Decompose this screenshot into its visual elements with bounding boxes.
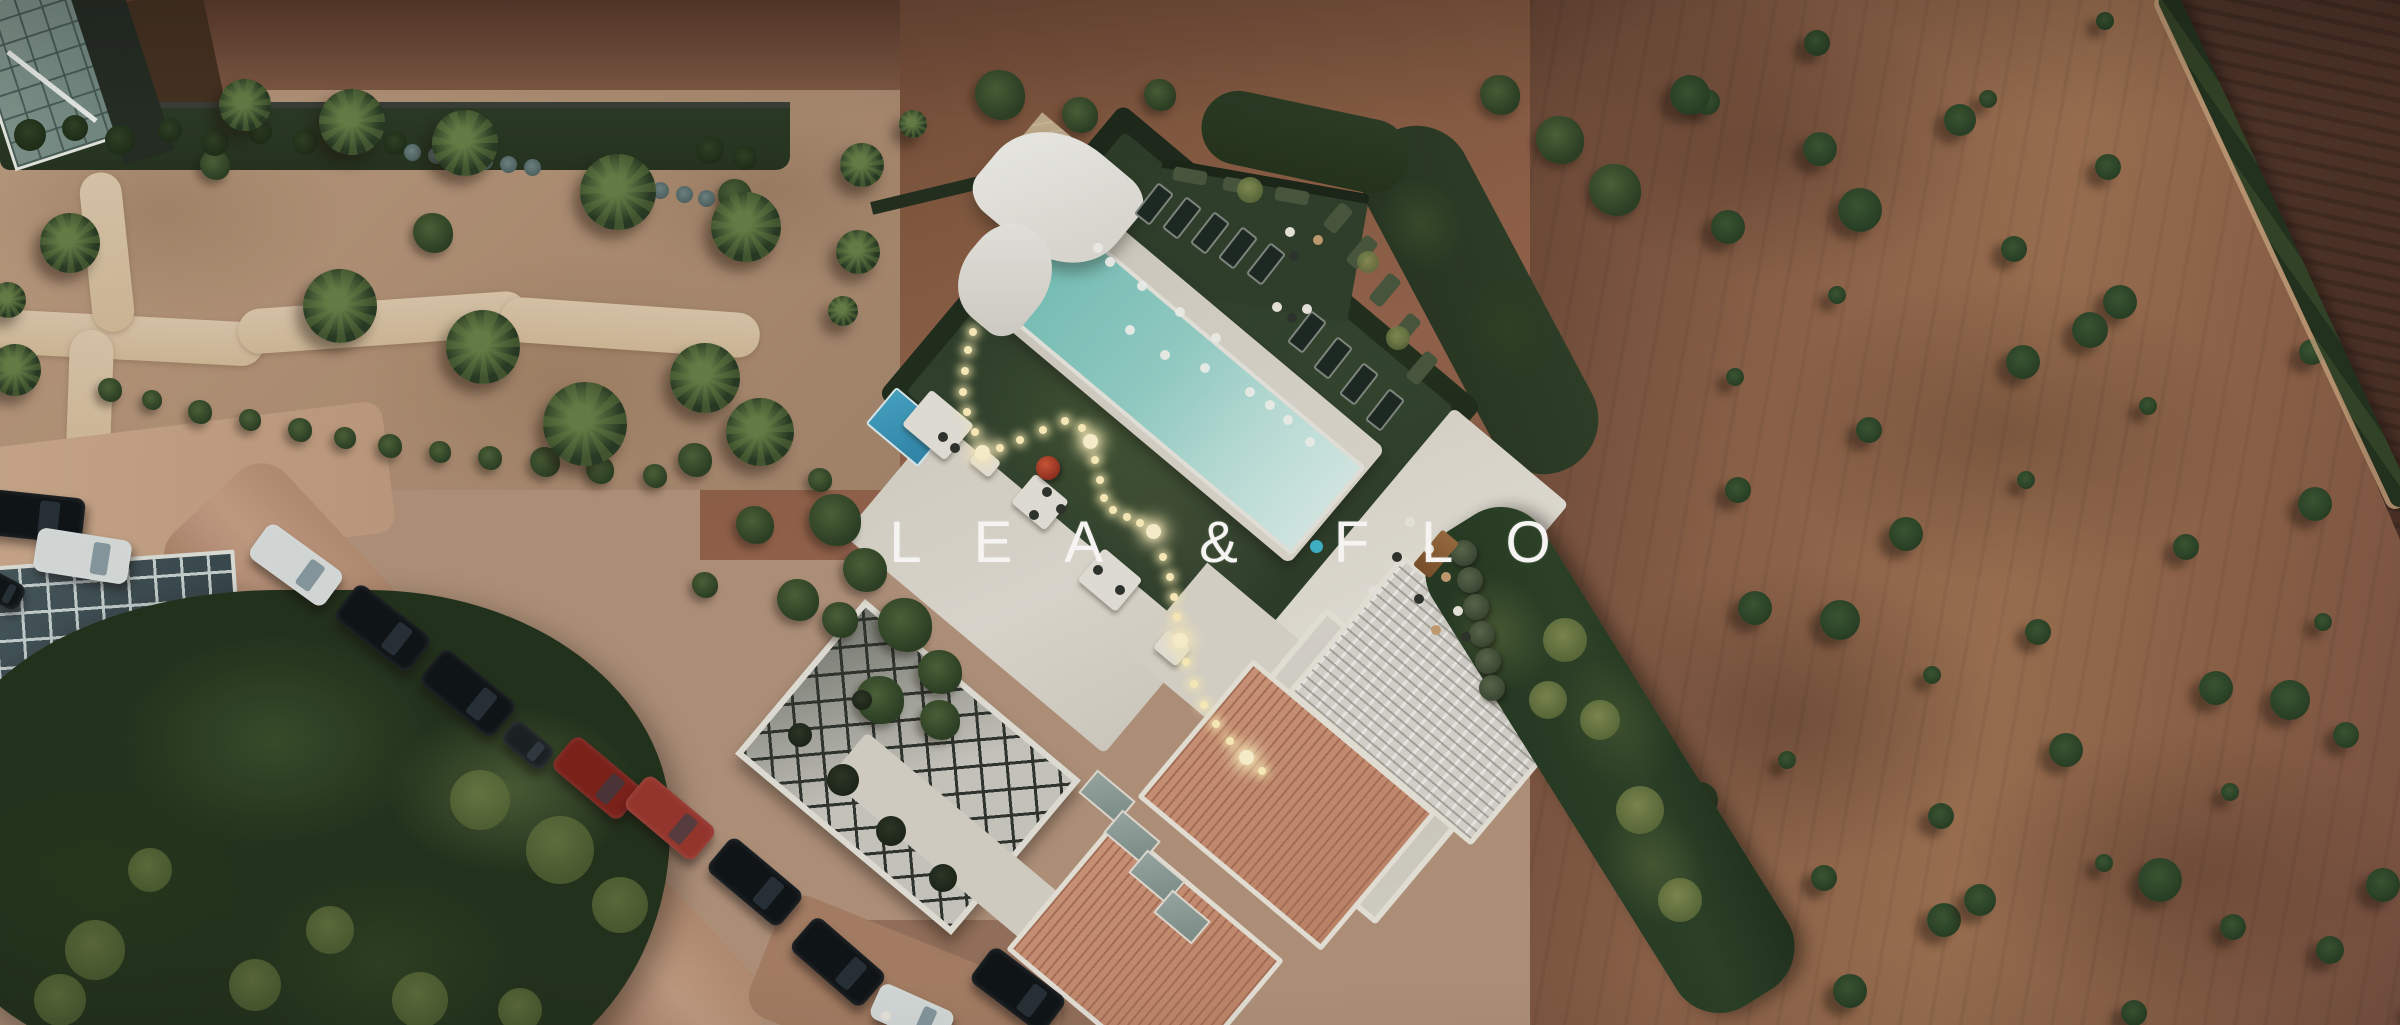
garden-bush: [142, 390, 162, 410]
hedge-bush: [158, 118, 182, 142]
title-groom: FLO: [1334, 514, 1603, 572]
field-shrub: [1738, 591, 1772, 625]
olive-accent: [1237, 177, 1263, 203]
field-shrub: [1820, 600, 1860, 640]
garden-bush: [334, 427, 356, 449]
pool-float: [1283, 415, 1293, 425]
car-windshield: [914, 1006, 938, 1025]
guest-dot: [938, 432, 948, 442]
boulder-bush: [1475, 648, 1501, 674]
guest-dot: [1285, 227, 1295, 237]
compound-bush: [918, 650, 962, 694]
field-shrub: [2121, 1000, 2147, 1025]
guest-dot: [1289, 251, 1299, 261]
palm-tree: [580, 154, 656, 230]
field-shrub: [1928, 803, 1954, 829]
car-windshield: [594, 772, 626, 805]
plant-pot: [676, 186, 693, 203]
hedge-bush: [62, 115, 88, 141]
string-light: [996, 444, 1004, 452]
hedge-bush: [201, 128, 229, 156]
pool-float: [1175, 307, 1185, 317]
pergola-tree-gap: [876, 816, 906, 846]
field-shrub: [1828, 286, 1846, 304]
pool-float: [1125, 325, 1135, 335]
garden-bush: [808, 468, 832, 492]
paper-lantern: [1173, 633, 1188, 648]
field-shrub: [1778, 751, 1796, 769]
tree-highlight: [34, 974, 86, 1025]
compound-bush: [809, 494, 861, 546]
car-windshield: [295, 558, 326, 592]
tree-highlight: [229, 959, 281, 1011]
field-shrub: [2025, 619, 2051, 645]
car-windshield: [1, 583, 17, 605]
garden-bush: [239, 409, 261, 431]
pool-float: [1265, 400, 1275, 410]
garden-bush: [478, 446, 502, 470]
field-shrub: [2221, 783, 2239, 801]
olive-accent: [1658, 878, 1702, 922]
tree-highlight: [392, 972, 448, 1025]
red-parasol: [1036, 456, 1060, 480]
string-light: [1226, 737, 1234, 745]
pool-float: [1160, 350, 1170, 360]
field-shrub: [1856, 417, 1882, 443]
olive-accent: [1616, 786, 1664, 834]
title-overlay: LEA & FLO: [889, 514, 1550, 572]
garden-bush: [678, 443, 712, 477]
guest-dot: [881, 1011, 891, 1021]
field-shrub: [2316, 936, 2344, 964]
boulder-bush: [1463, 594, 1489, 620]
olive-accent: [1580, 700, 1620, 740]
garden-bush: [188, 400, 212, 424]
string-light: [961, 367, 969, 375]
aerial-wedding-video-frame: LEA & FLO: [0, 0, 2400, 1025]
tree-highlight: [450, 770, 510, 830]
garden-bush: [736, 506, 774, 544]
field-shrub: [1838, 188, 1882, 232]
field-shrub: [2138, 858, 2182, 902]
paper-lantern: [1083, 434, 1098, 449]
pergola-tree-gap: [827, 764, 859, 796]
hedge-bush: [14, 119, 46, 151]
garden-bush: [1536, 116, 1584, 164]
hedge-bush: [105, 125, 135, 155]
string-light: [1212, 720, 1220, 728]
hedge-bush: [733, 146, 757, 170]
plant-pot: [698, 190, 715, 207]
guest-dot: [1453, 606, 1463, 616]
palm-tree: [219, 79, 271, 131]
compound-bush: [822, 602, 858, 638]
field-shrub: [2270, 680, 2310, 720]
tree-highlight: [592, 877, 648, 933]
garden-bush: [975, 70, 1025, 120]
palm-tree: [432, 110, 498, 176]
field-shrub: [2298, 487, 2332, 521]
string-light: [1039, 426, 1047, 434]
paper-lantern: [1239, 750, 1254, 765]
car-windshield: [752, 876, 785, 911]
field-shrub: [2220, 914, 2246, 940]
hedge-bush: [696, 136, 724, 164]
car-windshield: [835, 956, 869, 991]
guest-dot: [1115, 585, 1125, 595]
palm-tree: [726, 398, 794, 466]
olive-accent: [1543, 618, 1587, 662]
garden-bush: [413, 213, 453, 253]
field-shrub: [2072, 312, 2108, 348]
palm-tree: [711, 192, 781, 262]
guest-dot: [1313, 235, 1323, 245]
field-shrub: [2173, 534, 2199, 560]
guest-dot: [1272, 302, 1282, 312]
field-shrub: [1889, 517, 1923, 551]
compound-bush: [878, 598, 932, 652]
car-windshield: [381, 621, 414, 656]
field-shrub: [1670, 75, 1710, 115]
palm-tree: [828, 296, 858, 326]
field-shrub: [1833, 974, 1867, 1008]
string-light: [1166, 573, 1174, 581]
palm-tree: [836, 230, 880, 274]
string-light: [959, 388, 967, 396]
guest-dot: [1461, 632, 1471, 642]
string-light: [963, 408, 971, 416]
garden-bush: [429, 441, 451, 463]
field-shrub: [2095, 854, 2113, 872]
pool-float: [1093, 243, 1103, 253]
field-shrub: [1711, 210, 1745, 244]
string-light: [1061, 417, 1069, 425]
string-light: [1100, 494, 1108, 502]
string-light: [1016, 436, 1024, 444]
pool-float: [1245, 387, 1255, 397]
tree-highlight: [65, 920, 125, 980]
guest-dot: [1431, 625, 1441, 635]
pool-float: [1211, 333, 1221, 343]
field-shrub: [1804, 30, 1830, 56]
field-shrub: [2366, 868, 2400, 902]
string-light: [969, 328, 977, 336]
string-light: [1182, 658, 1190, 666]
car-windshield: [465, 687, 498, 722]
garden-bush: [98, 378, 122, 402]
boulder-bush: [1479, 675, 1505, 701]
string-light: [1258, 767, 1266, 775]
garden-bush: [288, 418, 312, 442]
guest-dot: [1302, 304, 1312, 314]
field-shrub: [2333, 722, 2359, 748]
title-ampersand: &: [1199, 514, 1290, 572]
field-shrub: [1964, 884, 1996, 916]
field-shrub: [2314, 613, 2332, 631]
palm-tree: [840, 143, 884, 187]
compound-bush: [920, 700, 960, 740]
string-light: [1200, 701, 1208, 709]
pool-float: [1200, 363, 1210, 373]
pergola-tree-gap: [852, 690, 872, 710]
tree-highlight: [498, 988, 542, 1025]
field-shrub: [2199, 671, 2233, 705]
garden-bush: [777, 579, 819, 621]
garden-bush: [378, 434, 402, 458]
boulder-bush: [1469, 621, 1495, 647]
field-shrub: [1726, 368, 1744, 386]
palm-tree: [543, 382, 627, 466]
guest-dot: [1287, 313, 1297, 323]
field-shrub: [1979, 90, 1997, 108]
field-shrub: [1923, 666, 1941, 684]
string-light: [964, 346, 972, 354]
plant-pot: [524, 159, 541, 176]
string-light: [971, 428, 979, 436]
tree-highlight: [128, 848, 172, 892]
guest-dot: [950, 443, 960, 453]
guest-dot: [1414, 594, 1424, 604]
paper-lantern: [975, 445, 990, 460]
string-light: [1170, 593, 1178, 601]
string-light: [1190, 680, 1198, 688]
field-shrub: [2103, 285, 2137, 319]
car-windshield: [526, 741, 546, 762]
pool-float: [1305, 437, 1315, 447]
olive-accent: [1529, 681, 1567, 719]
string-light: [1096, 476, 1104, 484]
tree-highlight: [526, 816, 594, 884]
car-windshield: [1016, 983, 1048, 1018]
garden-bush: [643, 464, 667, 488]
garden-bush: [1480, 75, 1520, 115]
hedge-bush: [292, 129, 318, 155]
garden-bush: [1144, 79, 1176, 111]
title-bride: LEA: [889, 514, 1155, 572]
garden-bush: [1062, 97, 1098, 133]
garden-bush: [1589, 164, 1641, 216]
garden-bush: [692, 572, 718, 598]
pergola-tree-gap: [929, 864, 957, 892]
palm-tree: [446, 310, 520, 384]
pergola-tree-gap: [788, 723, 812, 747]
field-shrub: [1811, 865, 1837, 891]
plant-pot: [500, 156, 517, 173]
tree-highlight: [306, 906, 354, 954]
string-light: [1173, 613, 1181, 621]
string-light: [1078, 424, 1086, 432]
palm-tree: [670, 343, 740, 413]
palm-tree: [899, 110, 927, 138]
car-windshield: [667, 812, 699, 846]
field-shrub: [2095, 154, 2121, 180]
compound-bush: [843, 548, 887, 592]
palm-tree: [319, 89, 385, 155]
olive-accent: [1357, 251, 1379, 273]
olive-accent: [1386, 326, 1410, 350]
pool-float: [1105, 257, 1115, 267]
palm-tree: [40, 213, 100, 273]
guest-dot: [1368, 586, 1378, 596]
pool-float: [1137, 281, 1147, 291]
car-windshield: [89, 542, 111, 576]
plant-pot: [404, 144, 421, 161]
field-shrub: [2049, 733, 2083, 767]
palm-tree: [303, 269, 377, 343]
guest-dot: [1042, 487, 1052, 497]
field-shrub: [1944, 104, 1976, 136]
string-light: [1091, 456, 1099, 464]
